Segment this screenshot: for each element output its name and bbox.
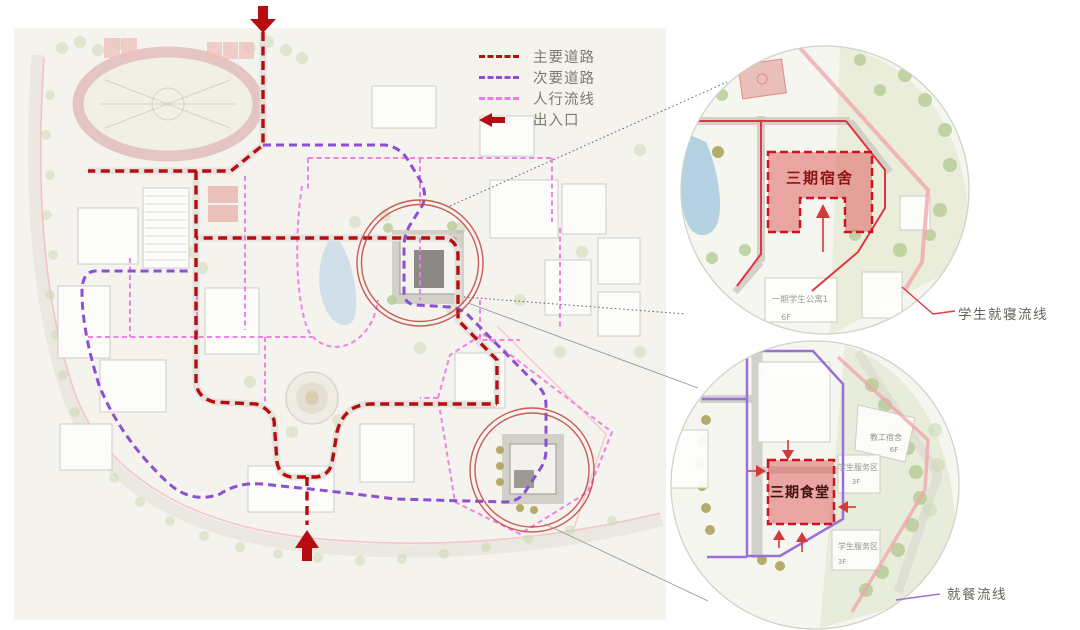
canteen-callout: 三期食堂 教工宿舍 6F 学生服务区 3F 学生服务区 3F <box>668 341 959 629</box>
dining-flow-label: 就餐流线 <box>947 583 1007 603</box>
pedestrian-flow-swatch <box>479 97 519 100</box>
sleep-flow-label: 学生就寝流线 <box>958 303 1048 323</box>
context-building-label: 教工宿舍 <box>870 432 902 442</box>
legend-label: 次要道路 <box>533 67 595 88</box>
legend-item-entrance: 出入口 <box>479 109 595 130</box>
running-track <box>78 52 258 156</box>
context-building-floor: 6F <box>781 313 791 322</box>
legend-item-main-road: 主要道路 <box>479 46 595 67</box>
dorm-title: 三期宿舍 <box>786 169 854 187</box>
legend-label: 出入口 <box>533 109 580 130</box>
legend-item-pedestrian-flow: 人行流线 <box>479 88 595 109</box>
entrance-arrow-icon <box>479 113 519 127</box>
legend-label: 主要道路 <box>533 46 595 67</box>
context-building-label: 学生服务区 <box>838 462 878 472</box>
dorm-callout: 三期宿舍 一期学生公寓1 6F <box>680 45 970 335</box>
circulation-analysis-diagram: 三期宿舍 一期学生公寓1 6F <box>0 0 1080 630</box>
context-building-label: 一期学生公寓1 <box>772 294 828 305</box>
main-road-swatch <box>479 55 519 58</box>
legend-item-secondary-road: 次要道路 <box>479 67 595 88</box>
central-plaza <box>286 372 338 424</box>
context-building-floor: 3F <box>838 558 846 566</box>
legend: 主要道路 次要道路 人行流线 出入口 <box>479 46 595 130</box>
canteen-title: 三期食堂 <box>770 484 830 501</box>
legend-label: 人行流线 <box>533 88 595 109</box>
callout-basketball-court <box>738 59 786 99</box>
context-building-floor: 6F <box>890 446 898 454</box>
dorm-block-mini <box>383 221 464 305</box>
context-building-label: 学生服务区 <box>838 541 878 551</box>
secondary-road-swatch <box>479 76 519 79</box>
context-building-floor: 3F <box>852 478 860 486</box>
